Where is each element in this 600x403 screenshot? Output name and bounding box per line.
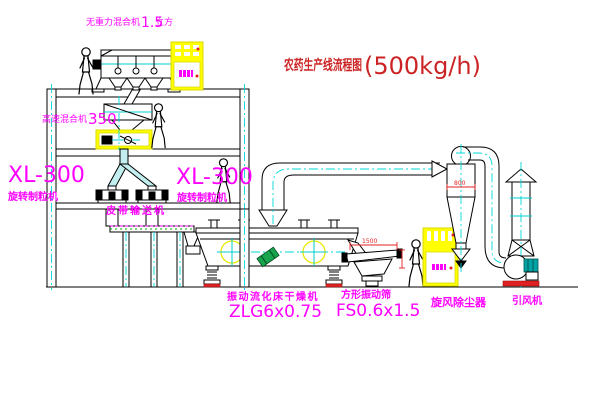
- person-figure-4: [409, 240, 423, 286]
- control-cabinet-bottom: [423, 228, 458, 286]
- label-cyclone: 旋风除尘器: [430, 295, 487, 309]
- fluid-bed-dryer: [186, 210, 368, 287]
- label-screen-model: FS0.6x1.5: [336, 301, 420, 321]
- induced-draft-fan: [503, 255, 539, 286]
- conveyor-legs: [123, 232, 183, 287]
- control-cabinet-top: [171, 42, 203, 90]
- label-gravity-mixer: 无重力混合机: [86, 16, 140, 28]
- title-capacity: (500kg/h): [364, 52, 481, 80]
- person-figure-1: [79, 48, 93, 94]
- dryer-spring-foot-right: [326, 266, 342, 287]
- indicator-light: [197, 48, 200, 51]
- column-overlay: [240, 209, 249, 290]
- indicator-light: [450, 267, 453, 270]
- label-screen-name: 方形振动筛: [341, 288, 391, 301]
- cad-drawing: 1500 800: [0, 0, 600, 403]
- exhaust-duct: [262, 161, 447, 224]
- screen-length-dim: 1500: [362, 238, 377, 245]
- label-hs-mixer-model: 350: [88, 110, 117, 128]
- label-xl-mid-name: 旋转制粒机: [176, 191, 227, 204]
- label-gravity-mixer-unit: 立方: [155, 16, 173, 28]
- granulator-right: [136, 186, 168, 203]
- label-xl-left-model: XL-300: [8, 163, 85, 188]
- dryer-spring-foot-left: [204, 266, 220, 287]
- drawing-title: 农药生产线流程图 (500kg/h): [283, 52, 481, 80]
- mixer-discharge-hoppers: [109, 78, 163, 90]
- label-belt-conveyor: 皮带输送机: [105, 204, 166, 217]
- person-figure-2: [152, 104, 165, 148]
- label-fan: 引风机: [512, 294, 542, 307]
- flow-diagram-canvas: 1500 800: [0, 0, 600, 403]
- fan-motor: [524, 259, 538, 272]
- granulator-left: [96, 186, 128, 203]
- label-xl-mid-model: XL-300: [176, 165, 253, 190]
- cyclone-dia-dim: 800: [454, 180, 466, 187]
- label-dryer-model: ZLG6x0.75: [229, 302, 322, 322]
- vibrating-screen: 1500: [342, 238, 405, 286]
- fan-base: [503, 281, 539, 286]
- label-xl-left-name: 旋转制粒机: [7, 190, 58, 203]
- title-cn: 农药生产线流程图: [283, 57, 362, 74]
- indicator-light: [196, 75, 199, 78]
- label-hs-mixer: 高速混合机: [42, 113, 87, 125]
